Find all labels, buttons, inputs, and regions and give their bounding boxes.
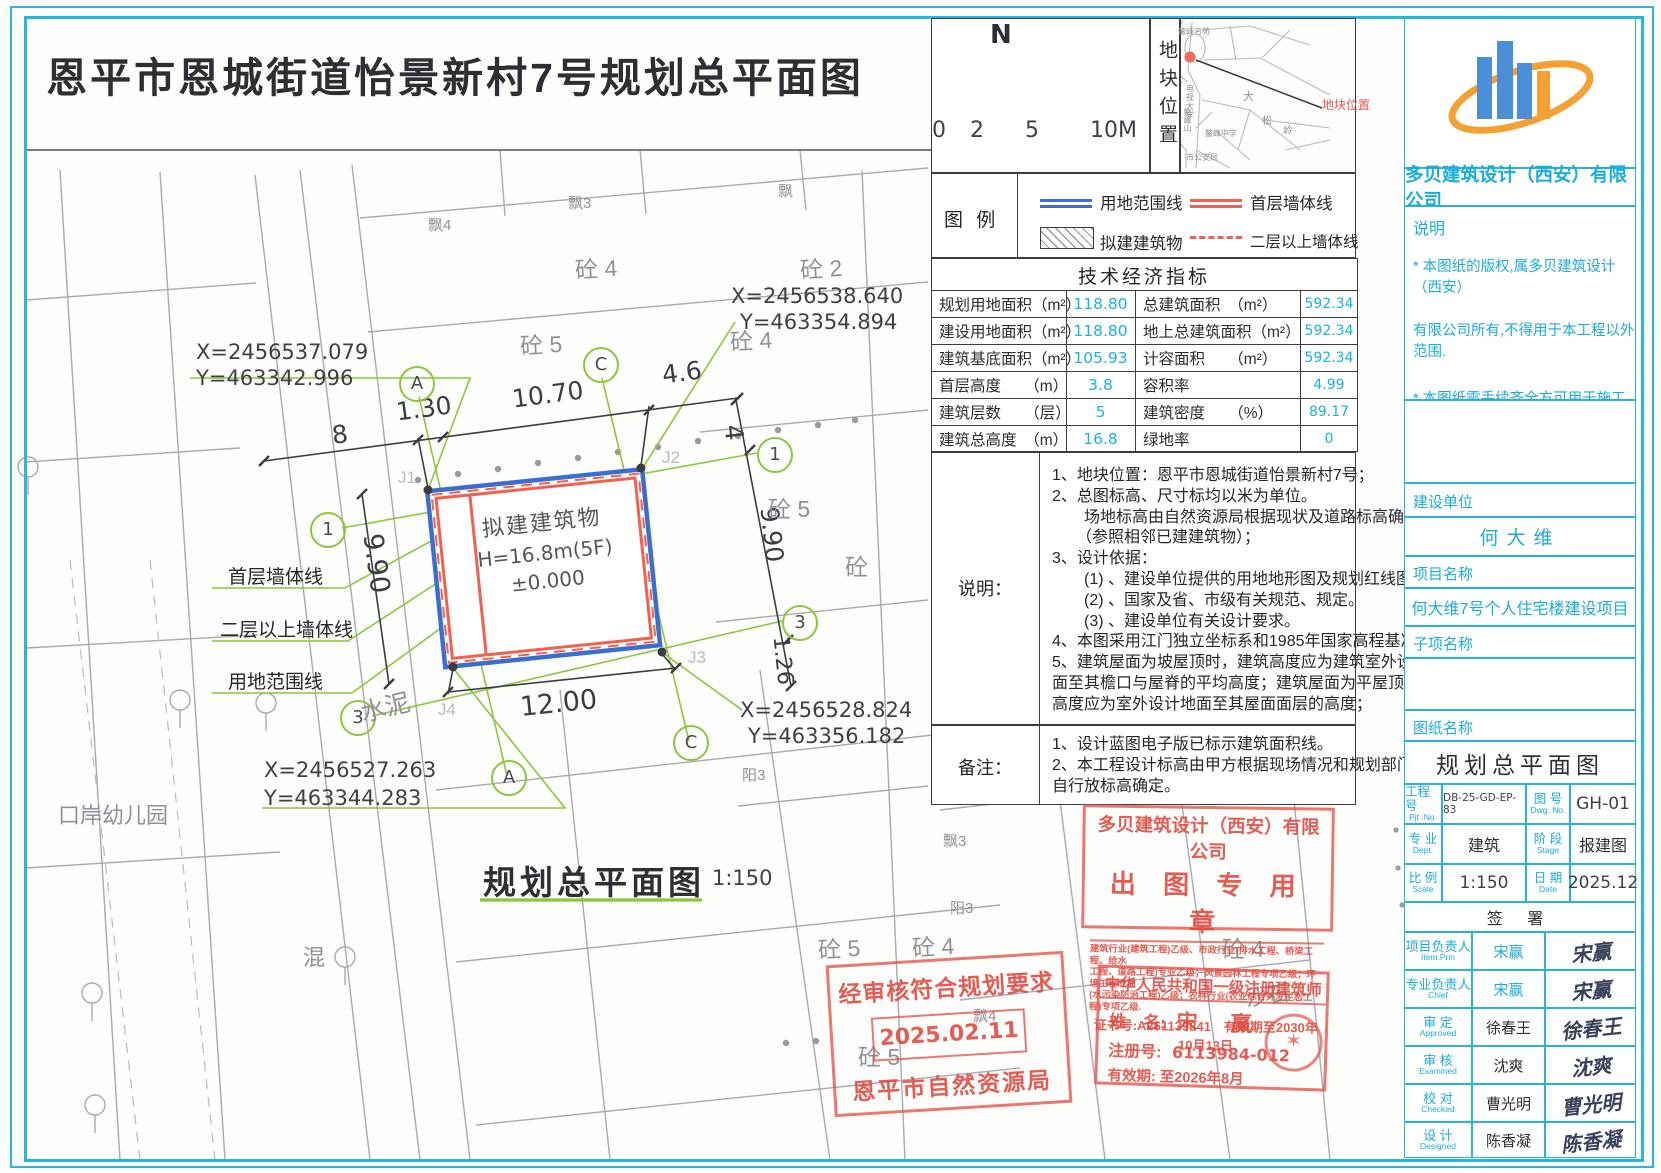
- remarks-content: 1、设计蓝图电子版已标示建筑面积线。 2、本工程设计标高由甲方根据现场情况和规划…: [1052, 734, 1445, 797]
- coord-1-y: Y=463342.996: [196, 366, 353, 390]
- ind-value: 89.17: [1300, 398, 1358, 425]
- site-label: 砼 4: [729, 321, 773, 357]
- meta-cell: DB-25-GD-EP-83: [1442, 784, 1526, 824]
- ind-label: 总建筑面积 （m²）: [1135, 290, 1308, 317]
- logo-cell: [1404, 18, 1636, 168]
- signer-name: 徐春王: [1486, 1017, 1531, 1038]
- architect-name: 宋 赢: [1176, 1011, 1258, 1037]
- company-logo: [1405, 19, 1637, 169]
- north-label: N: [990, 20, 1012, 50]
- meta-cell: GH-01: [1570, 784, 1636, 824]
- page-title: 恩平市恩城街道怡景新村7号规划总平面图: [46, 44, 864, 104]
- project-value-cell: 何大维7号个人住宅楼建设项目: [1404, 588, 1636, 626]
- ind-label: 容积率: [1135, 371, 1308, 398]
- corner-j4: J4: [438, 700, 456, 720]
- meta-sublabel: Pjt .No.: [1409, 813, 1437, 822]
- issue-stamp-title: 出 图 专 用 章: [1090, 863, 1325, 940]
- ind-label: 绿地率: [1135, 425, 1308, 452]
- owner-label: 建设单位: [1413, 491, 1473, 512]
- remark-line: 1、设计蓝图电子版已标示建筑面积线。: [1052, 734, 1445, 755]
- date-value: 2025.12: [1568, 873, 1638, 893]
- legend-swatch-upper-wall: [1190, 236, 1242, 245]
- legend-item-first-floor-wall: 首层墙体线: [1250, 190, 1333, 214]
- dim-right-126: 1.26: [768, 635, 798, 686]
- scale-value: 1:150: [1460, 873, 1509, 893]
- drawing-number: GH-01: [1576, 794, 1630, 814]
- map-label: 大: [1243, 88, 1254, 104]
- signer-name: 宋赢: [1493, 941, 1523, 962]
- signer-name-cell: 沈爽: [1472, 1046, 1545, 1084]
- meta-sublabel: Dwg. No.: [1531, 806, 1566, 815]
- signer-role-en: Designed: [1420, 1142, 1456, 1151]
- coord-1-x: X=2456537.079: [196, 340, 368, 364]
- signature: 陈香凝: [1559, 1122, 1622, 1157]
- signer-name: 沈爽: [1493, 1055, 1523, 1076]
- ind-label: 建设用地面积（m²）: [931, 317, 1074, 344]
- map-label: 鳌峰山: [1182, 108, 1193, 132]
- coord-2-x: X=2456538.640: [731, 284, 903, 308]
- owner-name: 何大维: [1479, 523, 1560, 550]
- signer-name-cell: 曹光明: [1472, 1084, 1545, 1122]
- meta-cell: 阶 段 Stage: [1526, 824, 1570, 864]
- meta-sublabel: Scale: [1412, 885, 1433, 894]
- architect-registration-stamp: 中华人民共和国一级注册建筑师 姓 名: 宋 赢 注册号: 6113984-012…: [1094, 964, 1330, 1091]
- sign-header-cell: 签 署: [1404, 902, 1636, 932]
- signer-name-cell: 陈香凝: [1472, 1122, 1545, 1158]
- discipline: 建筑: [1468, 832, 1500, 856]
- signature: 宋赢: [1569, 972, 1612, 1005]
- signer-signature-cell: 沈爽: [1545, 1046, 1636, 1084]
- indicators-title: 技术经济指标: [1078, 262, 1210, 289]
- project-name: 何大维7号个人住宅楼建设项目: [1412, 595, 1629, 619]
- scale-tick-2: 2: [970, 118, 984, 143]
- approval-stamp-line1: 经审核符合规划要求: [829, 962, 1063, 1010]
- ind-value: 4.99: [1300, 371, 1358, 398]
- label-first-floor-wall-line: 首层墙体线: [228, 562, 323, 589]
- signer-role-cell: 审 定 Approved: [1404, 1008, 1472, 1046]
- ind-label: 计容面积 （m²）: [1135, 344, 1308, 371]
- legend-swatch-boundary: [1040, 199, 1092, 208]
- signer-role-cell: 设 计 Designed: [1404, 1122, 1472, 1158]
- axis-bubble-1-left: 1: [310, 512, 346, 548]
- sheet-name: 规划总平面图: [1436, 746, 1604, 780]
- dim-top-46: 4.6: [660, 356, 703, 390]
- empty-cell: [1404, 400, 1636, 483]
- signer-role-cell: 校 对 Checked: [1404, 1084, 1472, 1122]
- ind-value: 105.93: [1066, 344, 1135, 371]
- site-label: 飘3: [943, 830, 966, 851]
- architect-reg-label: 注册号:: [1108, 1043, 1162, 1062]
- ind-value: 118.80: [1066, 290, 1135, 317]
- signer-signature-cell: 陈香凝: [1545, 1122, 1636, 1158]
- signer-role: 校 对: [1423, 1092, 1453, 1106]
- coord-4-x: X=2456527.263: [264, 758, 436, 782]
- approval-stamp-date: 2025.02.11: [871, 1008, 1027, 1061]
- signer-name: 陈香凝: [1486, 1130, 1531, 1151]
- architect-name-label: 姓 名:: [1109, 1012, 1166, 1033]
- signer-role-cell: 审 核 Examined: [1404, 1046, 1472, 1084]
- ind-label: 建筑密度 （%）: [1135, 398, 1308, 425]
- site-label: 砼 5: [519, 325, 563, 361]
- corner-j3: J3: [688, 648, 706, 668]
- axis-bubble-a-bottom: A: [491, 760, 527, 796]
- ind-value: 3.8: [1066, 371, 1135, 398]
- site-label: 飘4: [428, 214, 451, 235]
- plan-scale: 1:150: [712, 866, 773, 890]
- signer-role: 项目负责人: [1405, 940, 1470, 954]
- subproject-label: 子项名称: [1413, 633, 1473, 654]
- project-label-cell: 项目名称: [1404, 556, 1636, 588]
- project-label: 项目名称: [1413, 563, 1473, 584]
- legend-title: 图 例: [944, 205, 999, 232]
- signature: 曹光明: [1559, 1085, 1622, 1120]
- compass-scale-box: [931, 18, 1150, 173]
- remark-line: 2、本工程设计标高由甲方根据现场情况和规划部门要求: [1052, 755, 1445, 776]
- planning-approval-stamp: 经审核符合规划要求 2025.02.11 恩平市自然资源局: [826, 951, 1073, 1117]
- meta-sublabel: Dept.: [1413, 846, 1433, 855]
- site-label: 阳3: [742, 764, 765, 785]
- meta-cell: 日 期 Date: [1526, 864, 1570, 902]
- owner-label-cell: 建设单位: [1404, 483, 1636, 517]
- site-label: 砼 5: [768, 490, 810, 524]
- label-upper-floor-wall-line: 二层以上墙体线: [220, 615, 353, 642]
- ind-value: 118.80: [1066, 317, 1135, 344]
- meta-sublabel: Date: [1539, 885, 1557, 894]
- notes-label: 说明：: [958, 575, 1012, 601]
- location-strip-label: 地块位置: [1152, 30, 1180, 162]
- company-name-cell: 多贝建筑设计（西安）有限公司: [1404, 168, 1636, 206]
- scale-tick-5: 5: [1025, 118, 1039, 143]
- site-label: 飘3: [568, 192, 591, 213]
- dim-right-4: 4: [719, 423, 750, 442]
- copyright-notice-box: 说明 * 本图纸的版权,属多贝建筑设计（西安） 有限公司所有,不得用于本工程以外…: [1404, 206, 1636, 400]
- stage: 报建图: [1579, 832, 1627, 856]
- corner-j2: J2: [662, 448, 680, 468]
- meta-cell: 建筑: [1442, 824, 1526, 864]
- meta-cell: 图 号 Dwg. No.: [1526, 784, 1570, 824]
- signer-role-cell: 项目负责人 Item.Prin: [1404, 932, 1472, 970]
- axis-bubble-3-right: 3: [782, 605, 818, 641]
- legend-item-upper-wall: 二层以上墙体线: [1250, 230, 1359, 252]
- signer-signature-cell: 曹光明: [1545, 1084, 1636, 1122]
- legend-item-proposed-building: 拟建建筑物: [1100, 230, 1183, 254]
- site-label-kindergarten: 口岸幼儿园: [58, 798, 168, 830]
- notice-line: 有限公司所有,不得用于本工程以外范围.: [1413, 319, 1635, 361]
- axis-bubble-c-top: C: [583, 347, 619, 383]
- ind-label: 首层高度 （m）: [931, 371, 1074, 398]
- ind-value: 5: [1066, 398, 1135, 425]
- ind-label: 建筑层数 （层）: [931, 398, 1074, 425]
- signer-name: 宋赢: [1493, 979, 1523, 1000]
- remark-line: 自行放标高确定。: [1052, 776, 1445, 797]
- scale-tick-0: 0: [932, 118, 946, 143]
- meta-sublabel: Stage: [1537, 846, 1559, 855]
- signer-name: 曹光明: [1486, 1093, 1531, 1114]
- subproject-label-cell: 子项名称: [1404, 626, 1636, 658]
- signer-name-cell: 宋赢: [1472, 970, 1545, 1008]
- signer-role-en: Chief: [1428, 991, 1448, 1000]
- signer-role: 设 计: [1423, 1129, 1453, 1143]
- sheet-label: 图纸名称: [1413, 717, 1473, 738]
- signer-role: 审 核: [1423, 1054, 1453, 1068]
- signer-role: 审 定: [1423, 1016, 1453, 1030]
- ind-label: 地上总建筑面积（m²）: [1135, 317, 1308, 344]
- map-label: 鳌峰中学: [1205, 128, 1237, 139]
- site-label: 砼 4: [574, 249, 618, 285]
- signer-role-en: Checked: [1421, 1105, 1455, 1114]
- ind-value: 16.8: [1066, 425, 1135, 452]
- signer-signature-cell: 宋赢: [1545, 970, 1636, 1008]
- signer-signature-cell: 徐春王: [1545, 1008, 1636, 1046]
- ind-value: 0: [1300, 425, 1358, 452]
- drawing-sheet: 恩平市恩城街道怡景新村7号规划总平面图 X=2456537.079 Y=4633…: [0, 0, 1661, 1173]
- legend-item-boundary: 用地范围线: [1100, 190, 1183, 214]
- ind-label: 建筑基底面积（m²）: [931, 344, 1074, 371]
- plan-subtitle: 规划总平面图: [483, 856, 705, 904]
- signer-role-cell: 专业负责人 Chief: [1404, 970, 1472, 1008]
- project-number: DB-25-GD-EP-83: [1443, 792, 1525, 816]
- meta-cell: 专 业 Dept.: [1404, 824, 1442, 864]
- signer-role-en: Approved: [1420, 1029, 1456, 1038]
- site-label: 砼 5: [817, 929, 861, 965]
- meta-cell: 2025.12: [1570, 864, 1636, 902]
- issue-stamp-company: 多贝建筑设计（西安）有限公司: [1091, 810, 1326, 865]
- signature: 宋赢: [1569, 934, 1612, 967]
- meta-label: 工程号: [1405, 786, 1441, 812]
- meta-cell: 报建图: [1570, 824, 1636, 864]
- signer-name-cell: 宋赢: [1472, 932, 1545, 970]
- signer-signature-cell: 宋赢: [1545, 932, 1636, 970]
- subproject-value-cell: [1404, 658, 1636, 710]
- ind-label: 建筑总高度 （m）: [931, 425, 1074, 452]
- remarks-label: 备注：: [958, 754, 1012, 780]
- company-issue-stamp: 多贝建筑设计（西安）有限公司 出 图 专 用 章 建筑行业(建筑工程)乙级、市政…: [1081, 804, 1335, 932]
- axis-bubble-1-right: 1: [757, 437, 793, 473]
- map-label: 市公安局: [1186, 152, 1218, 163]
- map-marker-label: 地块位置: [1322, 96, 1370, 113]
- sheet-name-cell: 规划总平面图: [1404, 741, 1636, 784]
- map-label: 鳌峰名苑: [1178, 26, 1210, 37]
- axis-bubble-c-bottom: C: [673, 725, 709, 761]
- site-label: 砼 2: [799, 249, 843, 285]
- site-label: 阳3: [950, 897, 973, 918]
- ind-value: 592.34: [1300, 344, 1358, 371]
- ind-value: 592.34: [1300, 317, 1358, 344]
- axis-bubble-a-top: A: [399, 366, 435, 402]
- signer-name-cell: 徐春王: [1472, 1008, 1545, 1046]
- signature: 徐春王: [1559, 1009, 1622, 1044]
- legend-swatch-first-floor-wall: [1190, 199, 1242, 208]
- notice-title: 说明: [1413, 215, 1635, 239]
- legend-swatch-proposed-building: [1040, 227, 1094, 249]
- meta-cell: 工程号 Pjt .No.: [1404, 784, 1442, 824]
- signer-role: 专业负责人: [1405, 978, 1470, 992]
- signer-role-en: Examined: [1419, 1067, 1457, 1076]
- approval-stamp-authority: 恩平市自然资源局: [835, 1060, 1069, 1108]
- map-label: 松: [1262, 112, 1272, 127]
- ind-label: 规划用地面积（m²）: [931, 290, 1074, 317]
- coord-3-x: X=2456528.824: [740, 698, 912, 722]
- coord-4-y: Y=463344.283: [264, 786, 421, 810]
- meta-cell: 1:150: [1442, 864, 1526, 902]
- scale-tick-10m: 10M: [1090, 118, 1137, 143]
- sheet-label-cell: 图纸名称: [1404, 710, 1636, 741]
- corner-j1: J1: [398, 468, 416, 488]
- notice-line: * 本图纸的版权,属多贝建筑设计（西安）: [1413, 255, 1635, 297]
- ind-value: 592.34: [1300, 290, 1358, 317]
- site-label: 飘: [778, 180, 793, 201]
- sign-header: 签 署: [1487, 905, 1553, 929]
- signature: 沈爽: [1569, 1048, 1612, 1081]
- owner-value-cell: 何大维: [1404, 517, 1636, 556]
- map-label: 岭: [1283, 122, 1293, 137]
- site-label: 砼: [845, 548, 868, 582]
- coord-3-y: Y=463356.182: [748, 724, 905, 748]
- signer-role-en: Item.Prin: [1421, 953, 1455, 962]
- label-site-boundary-line: 用地范围线: [228, 667, 323, 694]
- site-label: 混: [303, 940, 325, 972]
- architect-stamp-title: 中华人民共和国一级注册建筑师: [1100, 967, 1327, 1005]
- meta-cell: 比 例 Scale: [1404, 864, 1442, 902]
